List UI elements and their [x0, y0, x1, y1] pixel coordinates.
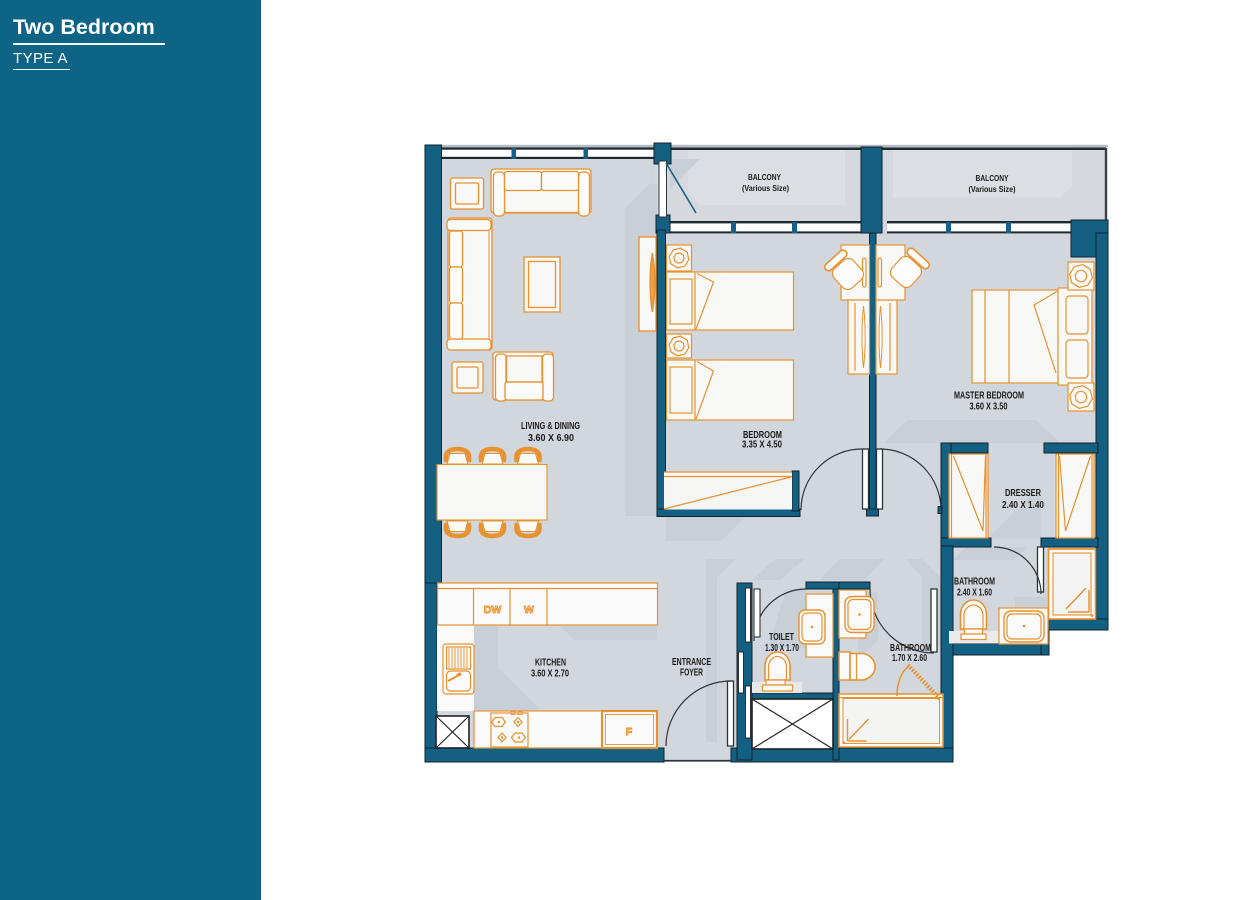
- svg-text:FOYER: FOYER: [680, 668, 704, 679]
- svg-text:(Various Size): (Various Size): [969, 184, 1016, 194]
- svg-text:(Various Size): (Various Size): [742, 183, 789, 193]
- svg-text:W: W: [524, 604, 534, 616]
- svg-text:BALCONY: BALCONY: [976, 173, 1009, 183]
- svg-text:DRESSER: DRESSER: [1005, 488, 1042, 499]
- svg-text:LIVING & DINING: LIVING & DINING: [521, 421, 580, 432]
- svg-text:BALCONY: BALCONY: [748, 172, 781, 182]
- svg-text:3.35 X 4.50: 3.35 X 4.50: [742, 440, 782, 451]
- svg-text:2.40 X 1.60: 2.40 X 1.60: [957, 588, 992, 599]
- svg-text:MASTER BEDROOM: MASTER BEDROOM: [954, 391, 1024, 402]
- svg-text:TOILET: TOILET: [769, 632, 794, 643]
- svg-text:KITCHEN: KITCHEN: [535, 658, 566, 669]
- svg-text:3.60 X 6.90: 3.60 X 6.90: [528, 433, 574, 444]
- svg-text:ENTRANCE: ENTRANCE: [672, 657, 711, 668]
- svg-text:2.40 X 1.40: 2.40 X 1.40: [1002, 500, 1044, 511]
- svg-text:F: F: [626, 726, 633, 738]
- svg-text:1.70 X 2.60: 1.70 X 2.60: [892, 653, 927, 664]
- svg-text:1.30 X 1.70: 1.30 X 1.70: [765, 643, 799, 654]
- svg-text:BATHROOM: BATHROOM: [954, 577, 995, 588]
- svg-text:3.60 X 3.50: 3.60 X 3.50: [970, 402, 1008, 413]
- svg-text:3.60 X 2.70: 3.60 X 2.70: [531, 669, 569, 680]
- svg-text:DW: DW: [484, 604, 502, 616]
